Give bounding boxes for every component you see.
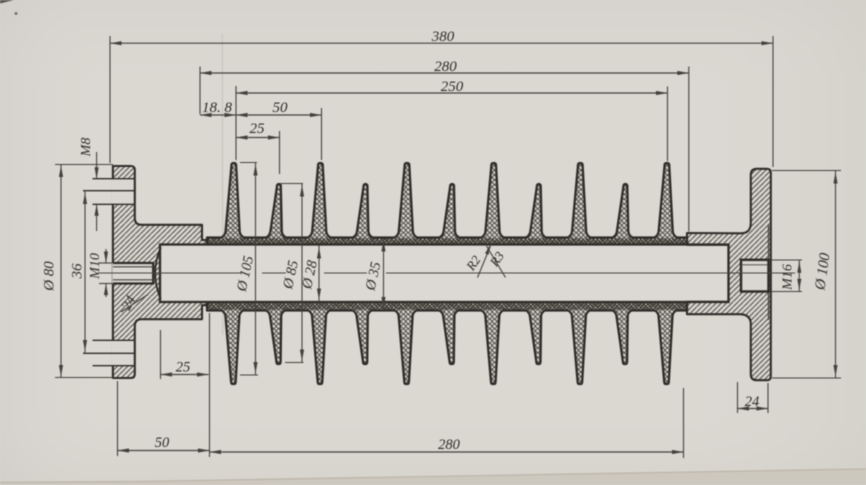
svg-text:380: 380 [431,29,455,45]
svg-text:25: 25 [250,121,266,137]
svg-text:50: 50 [155,435,170,451]
svg-text:M10: M10 [88,253,103,280]
svg-text:25: 25 [176,360,191,376]
svg-text:280: 280 [434,59,457,75]
svg-text:24: 24 [745,394,760,410]
svg-text:18. 8: 18. 8 [202,100,233,116]
svg-text:50: 50 [273,100,289,116]
svg-text:M8: M8 [79,138,94,158]
svg-text:250: 250 [441,79,464,95]
svg-text:36: 36 [70,263,86,280]
svg-text:M16: M16 [781,264,796,291]
svg-text:Ø 80: Ø 80 [42,261,58,292]
svg-text:280: 280 [438,437,461,453]
